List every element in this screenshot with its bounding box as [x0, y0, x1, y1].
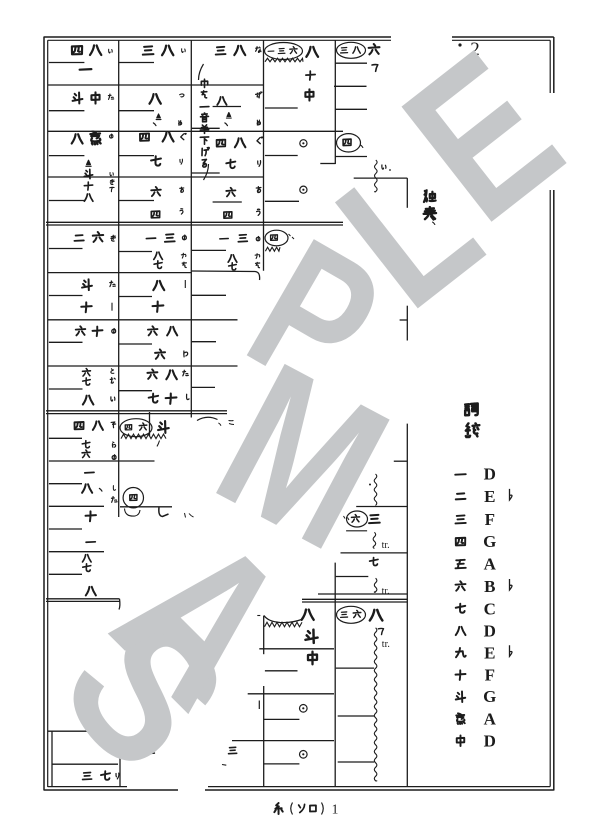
svg-text:A: A: [484, 555, 497, 574]
svg-text:F: F: [485, 666, 495, 685]
svg-text:B: B: [484, 577, 495, 596]
svg-text:C: C: [484, 599, 496, 618]
svg-text:A: A: [484, 709, 497, 728]
svg-text:G: G: [483, 687, 496, 706]
svg-text:D: D: [484, 731, 496, 750]
svg-text:E: E: [484, 643, 495, 662]
svg-text:tr.: tr.: [382, 586, 390, 597]
svg-text:E: E: [484, 487, 495, 506]
svg-text:tr.: tr.: [382, 639, 390, 650]
svg-text:D: D: [484, 465, 496, 484]
svg-text:F: F: [485, 510, 495, 529]
svg-text:G: G: [483, 532, 496, 551]
svg-text:D: D: [484, 621, 496, 640]
svg-text:1: 1: [332, 802, 339, 817]
svg-text:tr.: tr.: [382, 540, 390, 551]
